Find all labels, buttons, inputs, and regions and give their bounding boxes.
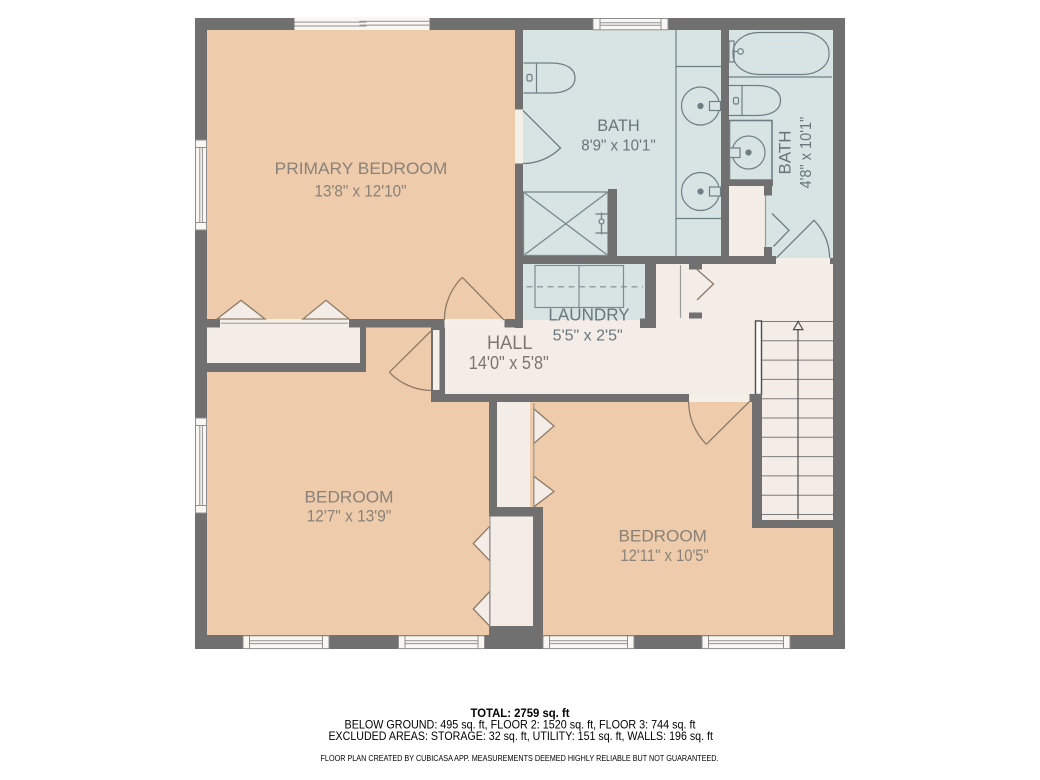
svg-text:HALL: HALL	[487, 333, 533, 354]
svg-text:14'0" x 5'8": 14'0" x 5'8"	[469, 353, 549, 373]
svg-text:BEDROOM: BEDROOM	[619, 527, 707, 546]
svg-text:13'8" x 12'10": 13'8" x 12'10"	[315, 182, 407, 200]
svg-text:LAUNDRY: LAUNDRY	[548, 305, 630, 325]
svg-text:BATH: BATH	[776, 131, 795, 175]
svg-text:BEDROOM: BEDROOM	[305, 487, 394, 506]
svg-text:12'7" x 13'9": 12'7" x 13'9"	[307, 507, 392, 525]
svg-text:FLOOR PLAN CREATED BY CUBICASA: FLOOR PLAN CREATED BY CUBICASA APP. MEAS…	[321, 754, 719, 763]
svg-text:PRIMARY BEDROOM: PRIMARY BEDROOM	[275, 159, 448, 178]
svg-text:8'9" x 10'1": 8'9" x 10'1"	[581, 138, 655, 155]
svg-text:BATH: BATH	[597, 116, 640, 135]
svg-text:EXCLUDED AREAS: STORAGE: 32 sq: EXCLUDED AREAS: STORAGE: 32 sq. ft, UTIL…	[328, 729, 713, 743]
svg-text:5'5" x 2'5": 5'5" x 2'5"	[553, 328, 623, 345]
svg-text:12'11" x 10'5": 12'11" x 10'5"	[620, 547, 709, 565]
svg-text:4'8" x 10'1": 4'8" x 10'1"	[798, 117, 815, 189]
